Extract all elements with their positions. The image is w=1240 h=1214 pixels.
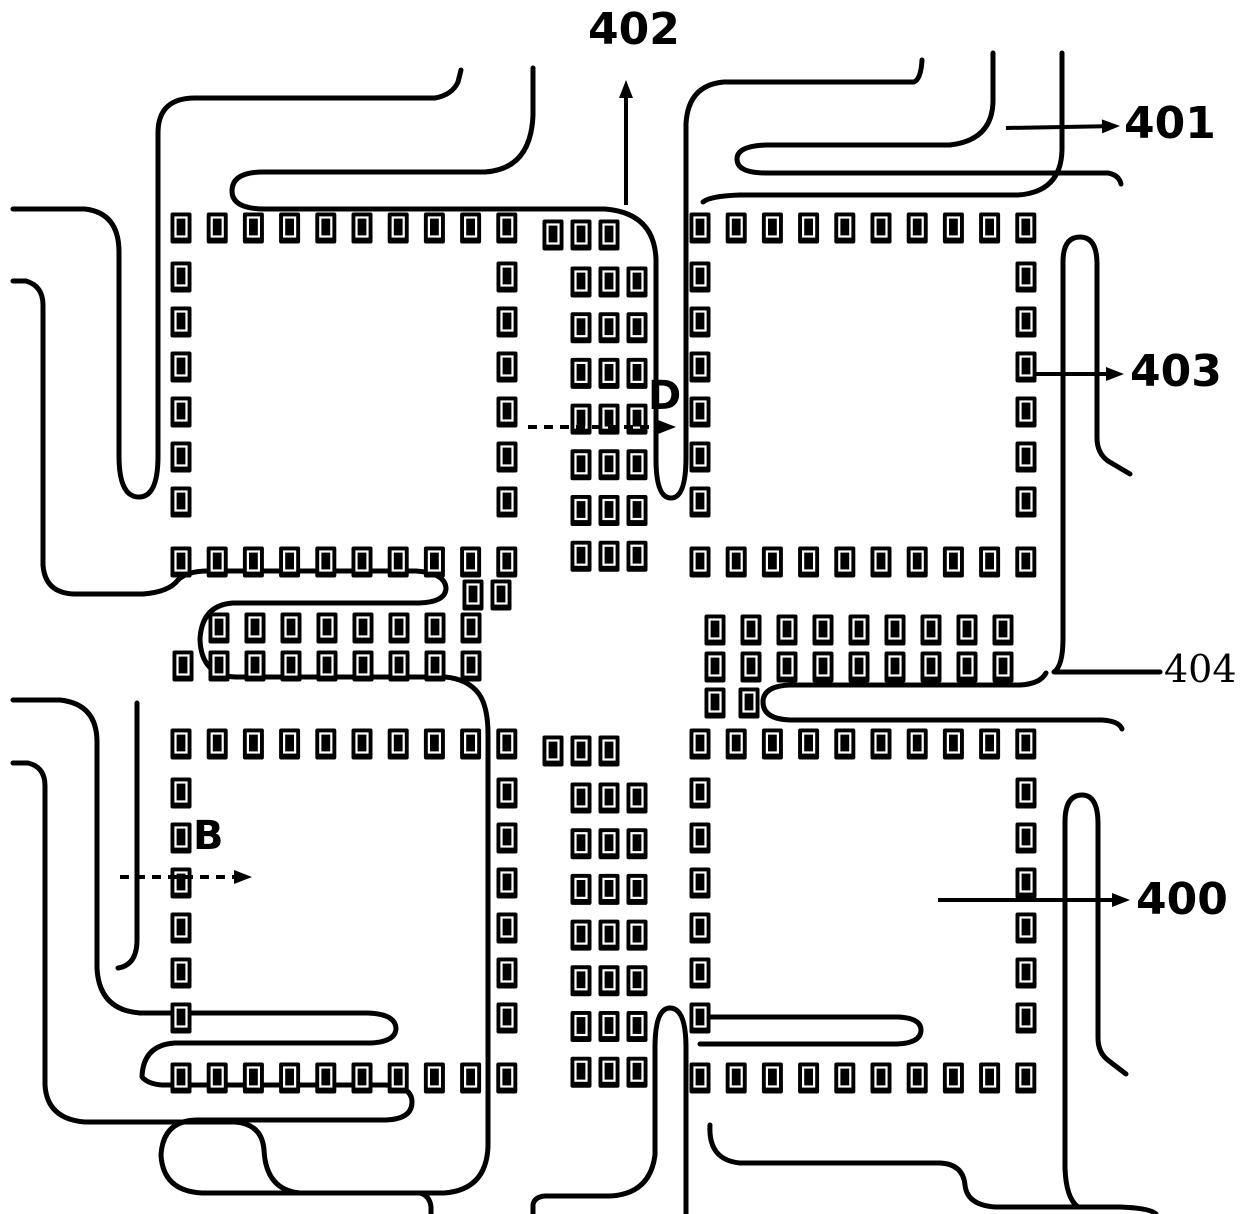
arrow-D-head	[658, 420, 676, 434]
wiring-trace	[1054, 237, 1160, 672]
section-label-B: B	[193, 816, 224, 856]
arrow-401	[1006, 126, 1104, 128]
ref-label-400: 400	[1136, 878, 1228, 922]
wiring-trace	[13, 70, 461, 497]
ref-label-403: 403	[1130, 350, 1222, 394]
section-label-D: D	[648, 376, 681, 416]
ref-label-404: 404	[1164, 650, 1237, 688]
figure-stage: 402 401 403 404 400 D B	[0, 0, 1240, 1214]
patent-figure-canvas	[0, 0, 1240, 1214]
wiring-trace	[118, 703, 137, 968]
wiring-trace	[700, 1017, 921, 1044]
wiring-trace	[710, 1125, 1156, 1214]
wiring-trace	[1065, 795, 1126, 1207]
arrow-B-head	[234, 870, 252, 884]
ref-label-401: 401	[1124, 102, 1216, 146]
arrow-401-head	[1102, 119, 1120, 133]
arrow-402-head	[619, 80, 633, 98]
ref-label-402: 402	[588, 8, 680, 52]
arrow-400-head	[1112, 893, 1130, 907]
arrow-403-head	[1106, 367, 1124, 381]
